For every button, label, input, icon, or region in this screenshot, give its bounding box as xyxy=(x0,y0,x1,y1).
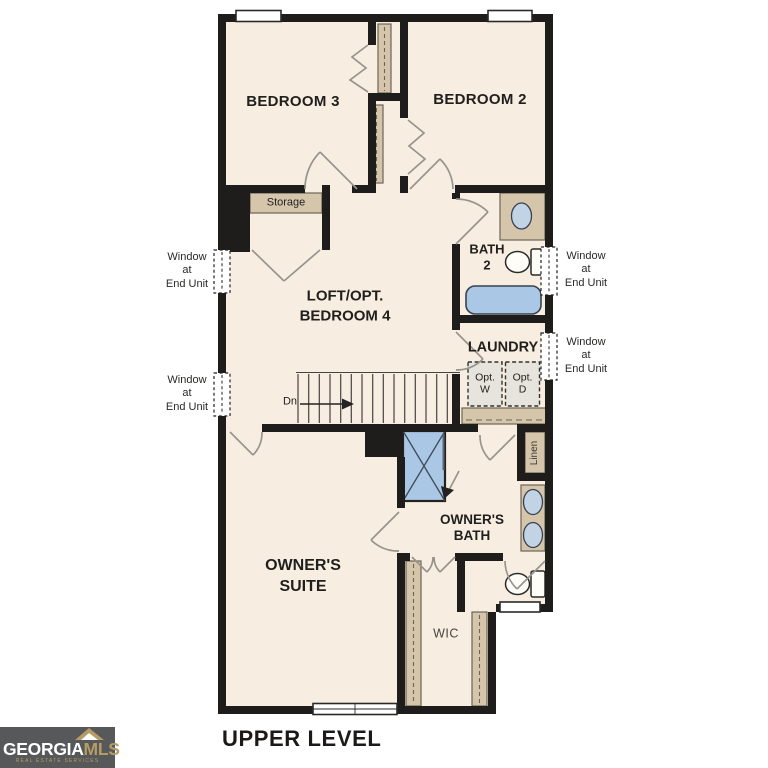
level-title: UPPER LEVEL xyxy=(222,726,381,752)
sink xyxy=(512,203,532,229)
sink xyxy=(524,523,543,548)
room-label-owners-bath: OWNER'S BATH xyxy=(440,512,504,544)
room-label-wic: WIC xyxy=(433,627,459,642)
opt-washer-label: Opt. W xyxy=(475,372,495,397)
window-note-right-lower: Window at End Unit xyxy=(565,336,607,376)
room-label-owners-suite: OWNER'S SUITE xyxy=(265,556,341,598)
stairs-direction-label: Dn xyxy=(283,395,297,408)
window-note-left-upper: Window at End Unit xyxy=(166,251,208,291)
room-label-bedroom-3: BEDROOM 3 xyxy=(246,93,340,111)
room-label-storage: Storage xyxy=(267,196,306,209)
sink xyxy=(524,490,543,515)
logo-brand-georgia: GEORGIA xyxy=(3,739,84,759)
room-label-laundry: LAUNDRY xyxy=(468,339,538,356)
room-label-linen: Linen xyxy=(529,441,541,465)
logo-brand-text: GEORGIAMLS xyxy=(3,739,120,760)
window-note-left-lower: Window at End Unit xyxy=(166,374,208,414)
floor-plan-page: BEDROOM 3 BEDROOM 2 LOFT/OPT. BEDROOM 4 … xyxy=(0,0,768,768)
room-label-bath-2: BATH 2 xyxy=(469,241,504,272)
floor-plan-drawing xyxy=(0,0,768,768)
bathtub xyxy=(466,286,541,314)
room-label-loft-opt-bedroom-4: LOFT/OPT. BEDROOM 4 xyxy=(300,287,391,326)
opt-dryer-label: Opt. D xyxy=(513,372,533,397)
georgia-mls-logo: GEORGIAMLS REAL ESTATE SERVICES xyxy=(0,727,115,768)
logo-brand-mls: MLS xyxy=(84,739,120,759)
window-note-right-upper: Window at End Unit xyxy=(565,250,607,290)
logo-tagline: REAL ESTATE SERVICES xyxy=(0,758,115,764)
room-label-bedroom-2: BEDROOM 2 xyxy=(433,91,527,109)
